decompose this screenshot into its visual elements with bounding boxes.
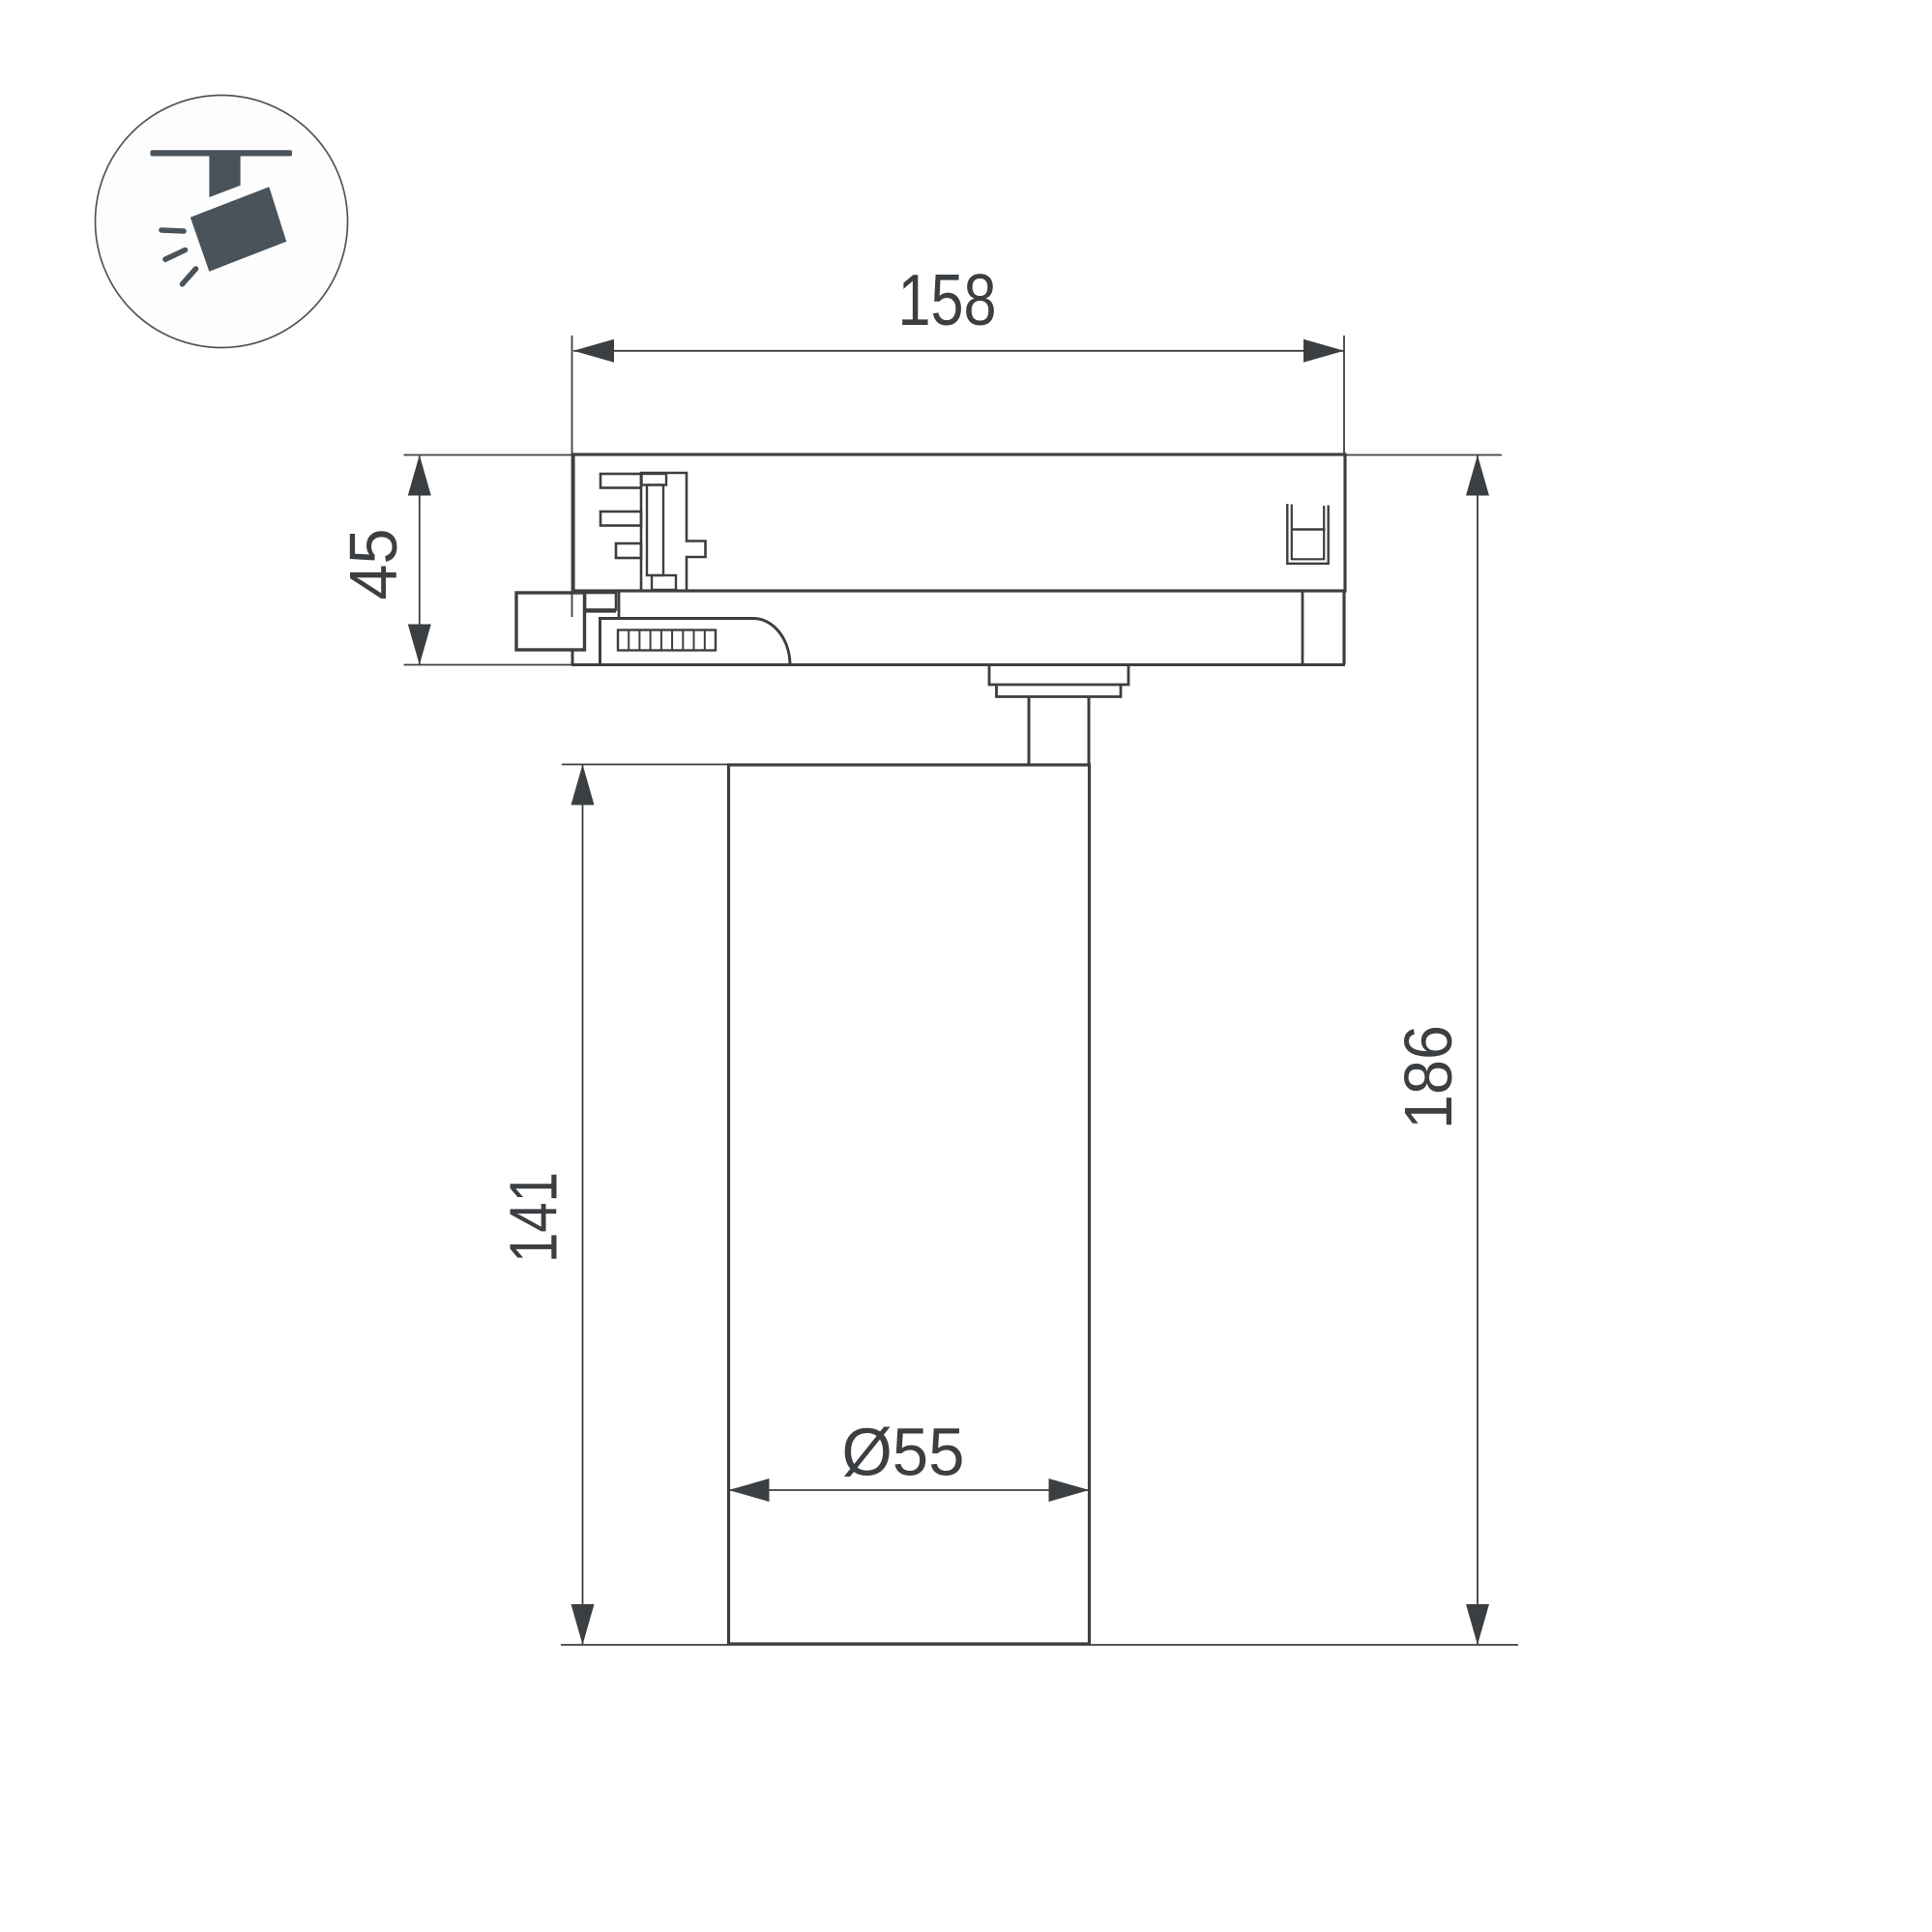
svg-text:141: 141: [496, 1172, 571, 1263]
svg-text:45: 45: [336, 529, 411, 600]
svg-text:158: 158: [898, 259, 997, 340]
svg-text:Ø55: Ø55: [842, 1415, 965, 1490]
svg-text:186: 186: [1390, 1025, 1466, 1129]
